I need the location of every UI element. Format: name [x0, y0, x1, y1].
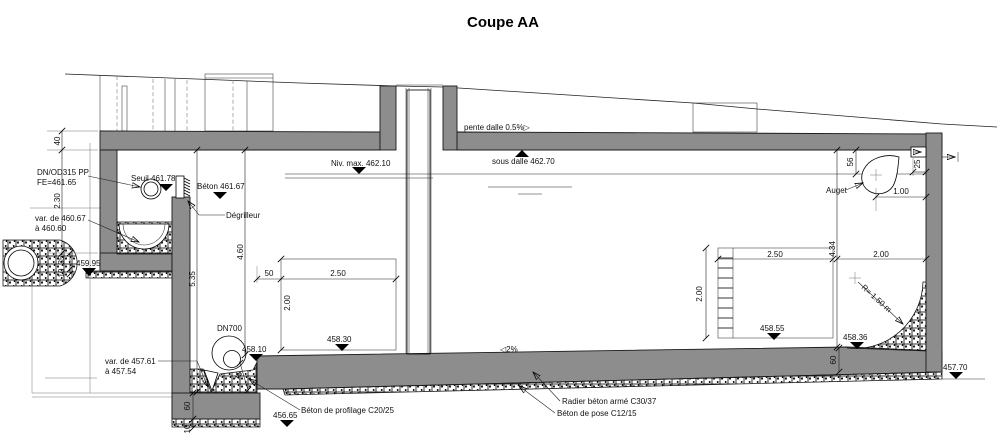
chamber-base: [100, 253, 172, 271]
label-fillet-radius: R= 1.50 m: [860, 283, 894, 315]
dim-200-corner: 2.00: [873, 250, 889, 259]
dim-200-left: 2.00: [283, 295, 292, 311]
dim-60-right: 60: [829, 355, 838, 364]
access-cover-box: [205, 74, 273, 131]
label-sump-var1: var. de 457.61: [105, 357, 156, 366]
coupe-aa-drawing: Coupe AA: [0, 0, 1000, 442]
screen-unit: [176, 176, 190, 198]
gauge-tube: [122, 86, 127, 131]
dim-10-sump: 10: [183, 424, 192, 433]
label-pente-dalle: pente dalle 0.5%▷: [464, 123, 531, 132]
equipment-pads: [281, 248, 833, 350]
level-marker-457-70: [949, 372, 963, 379]
chamber-pose-layer: [86, 271, 172, 278]
label-beton-sill: Béton 461.67: [197, 182, 245, 191]
label-level-458-10: 458.10: [242, 345, 267, 354]
label-invert-var1: var. de 460.67: [35, 214, 86, 223]
dim-250-left: 2.50: [330, 269, 346, 278]
weir-wall: [172, 197, 190, 419]
dim-10: 10: [57, 268, 66, 277]
ladder-rungs: [407, 90, 430, 354]
left-outer-wall: [100, 150, 117, 270]
label-beton-pose: Béton de pose C12/15: [557, 409, 637, 418]
label-inlet-line1: DN/OD315 PP: [37, 168, 89, 177]
label-level-459-95: 459.95: [76, 259, 101, 268]
level-marker-niv-max: [352, 167, 366, 174]
dim-250-right: 2.50: [767, 250, 783, 259]
label-floor-slope: ◁2%: [500, 345, 518, 354]
dim-535: 5.35: [188, 271, 197, 287]
shaft-wall-right: [443, 86, 457, 150]
shaft-wall-left: [380, 86, 396, 150]
leader-degrilleur: [188, 201, 225, 215]
dim-40: 40: [53, 136, 62, 145]
label-level-458-55: 458.55: [760, 324, 785, 333]
top-slab-right: [457, 132, 942, 150]
label-beton-profilage: Béton de profilage C20/25: [301, 406, 395, 415]
leader-auget: [846, 183, 863, 190]
dim-200-right: 2.00: [695, 286, 704, 302]
outfall-pipe-end-inner: [8, 250, 34, 276]
screen-hatch: [184, 178, 190, 196]
access-ladder: [406, 88, 431, 354]
label-radier: Radier béton armé C30/37: [562, 397, 657, 406]
dim-460: 4.60: [236, 244, 245, 260]
dim-100: 1.00: [893, 187, 909, 196]
level-marker-456-65: [280, 420, 294, 427]
label-seuil: Seuil 461.78: [131, 174, 176, 183]
dim-35: 35: [57, 255, 66, 264]
dim-434: 4.34: [828, 241, 837, 257]
label-niv-max: Niv. max. 462.10: [331, 159, 391, 168]
level-marker-458-55: [767, 333, 781, 340]
label-level-458-30: 458.30: [327, 335, 352, 344]
page-title: Coupe AA: [467, 14, 539, 31]
dim-56: 56: [846, 157, 855, 166]
level-marker-sous-dalle: [515, 150, 529, 157]
dim-50: 50: [265, 269, 274, 278]
label-level-456-65: 456.65: [273, 411, 298, 420]
label-degrilleur: Dégrilleur: [226, 211, 261, 220]
level-marker-beton: [213, 192, 227, 199]
right-pad-strip-rungs: [718, 258, 733, 328]
above-ground-structures: [100, 74, 757, 132]
dim-230: 2.30: [53, 193, 62, 209]
right-wall: [926, 133, 942, 372]
label-sump-var2: à 457.54: [105, 367, 137, 376]
label-level-458-36: 458.36: [843, 333, 868, 342]
dim-60-sump: 60: [183, 401, 192, 410]
inlet-pipe-inner: [144, 182, 158, 196]
dim-25: 25: [913, 159, 922, 168]
screen-frame: [176, 176, 184, 198]
technical-drawing-page: Coupe AA: [0, 0, 1000, 442]
top-slab-left: [100, 131, 380, 150]
label-invert-var2: à 460.60: [35, 224, 67, 233]
label-auget: Auget: [826, 186, 848, 195]
label-dn700: DN700: [217, 324, 242, 333]
label-inlet-line2: FE=461.65: [37, 178, 77, 187]
right-cover-box: [693, 103, 757, 132]
label-level-457-70: 457.70: [943, 363, 968, 372]
label-sous-dalle: sous dalle 462.70: [492, 157, 555, 166]
